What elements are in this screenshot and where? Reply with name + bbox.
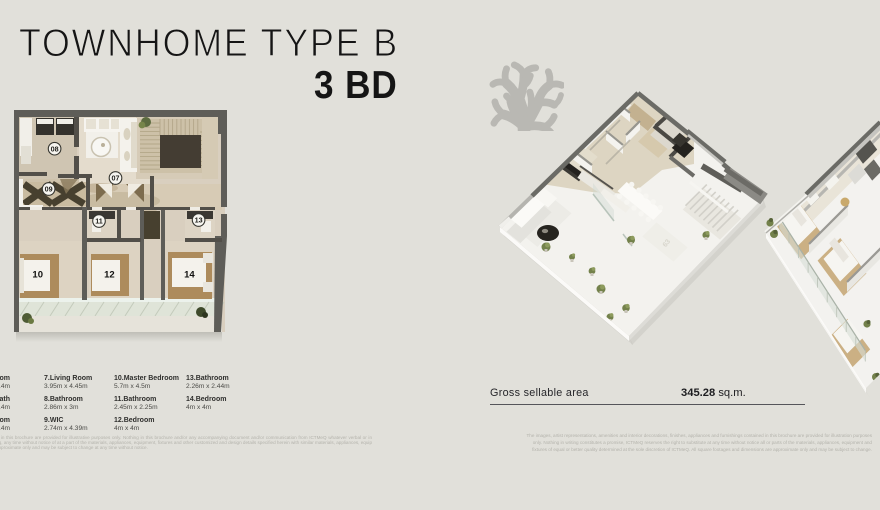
svg-text:13: 13 (195, 216, 203, 225)
svg-text:11: 11 (95, 217, 103, 226)
svg-text:10: 10 (32, 269, 43, 280)
svg-text:14: 14 (184, 269, 195, 280)
svg-text:07: 07 (112, 174, 120, 183)
svg-text:09: 09 (45, 185, 53, 194)
svg-text:12: 12 (104, 269, 115, 280)
svg-text:08: 08 (51, 144, 59, 153)
